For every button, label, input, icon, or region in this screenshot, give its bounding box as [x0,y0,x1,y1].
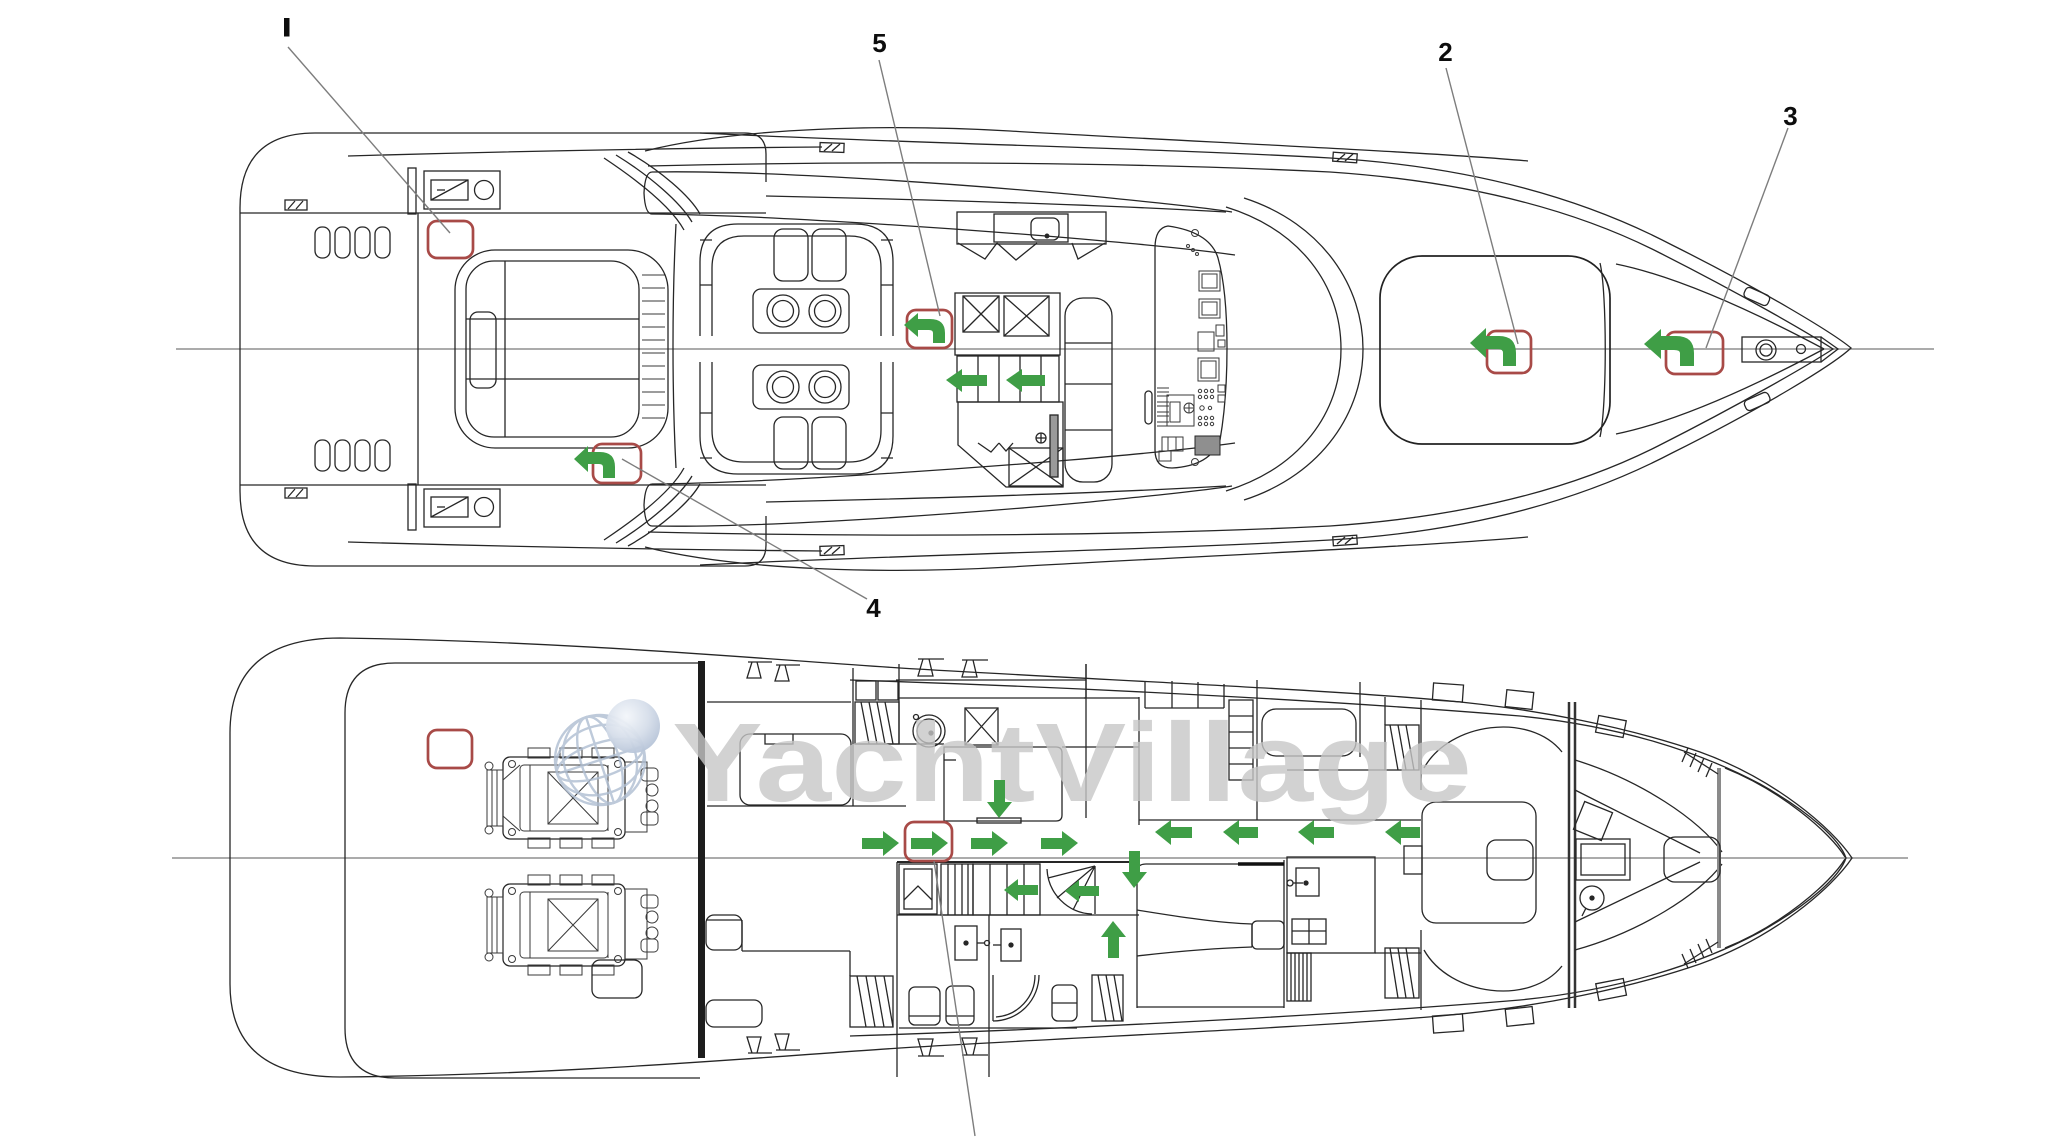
svg-text:3: 3 [1783,101,1797,131]
svg-text:2: 2 [1438,37,1452,67]
svg-text:YachtVillage: YachtVillage [672,700,1472,825]
svg-text:5: 5 [872,28,886,58]
svg-text:4: 4 [866,593,881,623]
